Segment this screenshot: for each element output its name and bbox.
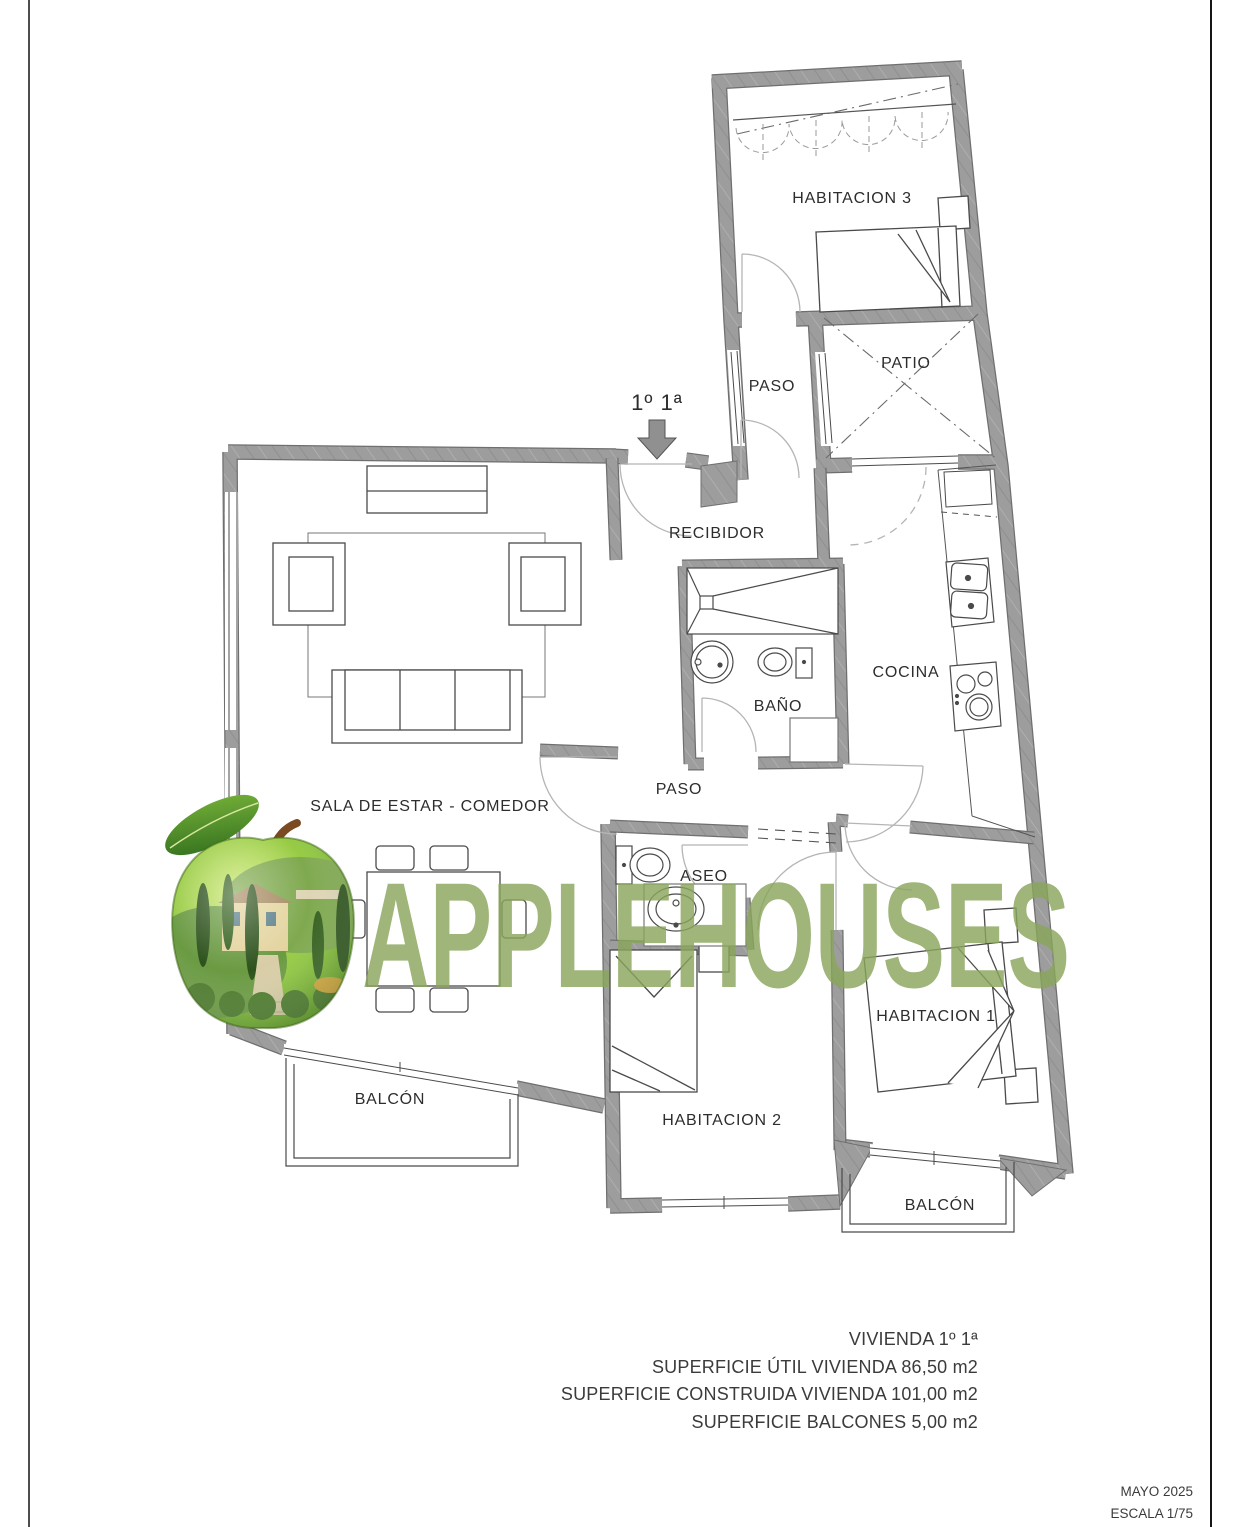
summary-line-built-area: SUPERFICIE CONSTRUIDA VIVIENDA 101,00 m2 xyxy=(561,1381,978,1409)
bathroom-toilet xyxy=(758,648,812,678)
shower xyxy=(687,568,838,634)
entry-marker: 1º 1ª xyxy=(631,390,683,459)
entry-pillar xyxy=(701,461,737,507)
room-label-paso-top: PASO xyxy=(749,378,795,395)
room-label-balcon-right: BALCÓN xyxy=(905,1195,976,1214)
room-label-balcon-left: BALCÓN xyxy=(355,1089,426,1108)
room-label-sala: SALA DE ESTAR - COMEDOR xyxy=(310,798,549,815)
floor-plan: 1º 1ª HABITACION 3 PASO PATIO RECIBIDOR … xyxy=(0,0,1240,1527)
room-label-habitacion-2: HABITACION 2 xyxy=(662,1112,782,1129)
kitchen-stove xyxy=(950,662,1001,731)
summary-line-useful-area: SUPERFICIE ÚTIL VIVIENDA 86,50 m2 xyxy=(561,1354,978,1382)
title-block: MAYO 2025 ESCALA 1/75 xyxy=(1110,1481,1193,1525)
title-block-scale: ESCALA 1/75 xyxy=(1110,1503,1193,1525)
bed-habitacion-3 xyxy=(816,196,970,312)
apple-garden-scene xyxy=(143,838,378,1029)
bathroom-sink xyxy=(691,641,733,683)
room-label-cocina: COCINA xyxy=(872,664,939,681)
summary-line-unit: VIVIENDA 1º 1ª xyxy=(561,1326,978,1354)
room-label-recibidor: RECIBIDOR xyxy=(669,525,765,542)
unit-label: 1º 1ª xyxy=(631,390,683,415)
room-label-habitacion-3: HABITACION 3 xyxy=(792,190,912,207)
apple-logo xyxy=(143,783,378,1028)
drawing-sheet: 1º 1ª HABITACION 3 PASO PATIO RECIBIDOR … xyxy=(0,0,1240,1527)
sofa xyxy=(332,670,522,743)
entry-arrow-icon xyxy=(638,420,676,459)
summary-line-balcony-area: SUPERFICIE BALCONES 5,00 m2 xyxy=(561,1409,978,1437)
armchair-right xyxy=(509,543,581,625)
room-label-patio: PATIO xyxy=(881,355,931,372)
kitchen-sink xyxy=(946,558,994,627)
watermark-brand-text: APPLEHOUSES xyxy=(362,851,1070,1019)
sideboard xyxy=(367,466,487,513)
wall-wedge-left xyxy=(834,1140,872,1206)
armchair-left xyxy=(273,543,345,625)
room-label-paso-mid: PASO xyxy=(656,781,702,798)
room-label-bano: BAÑO xyxy=(754,695,803,715)
bathroom-shelf xyxy=(790,718,838,762)
title-block-date: MAYO 2025 xyxy=(1110,1481,1193,1503)
area-summary: VIVIENDA 1º 1ª SUPERFICIE ÚTIL VIVIENDA … xyxy=(561,1326,978,1436)
